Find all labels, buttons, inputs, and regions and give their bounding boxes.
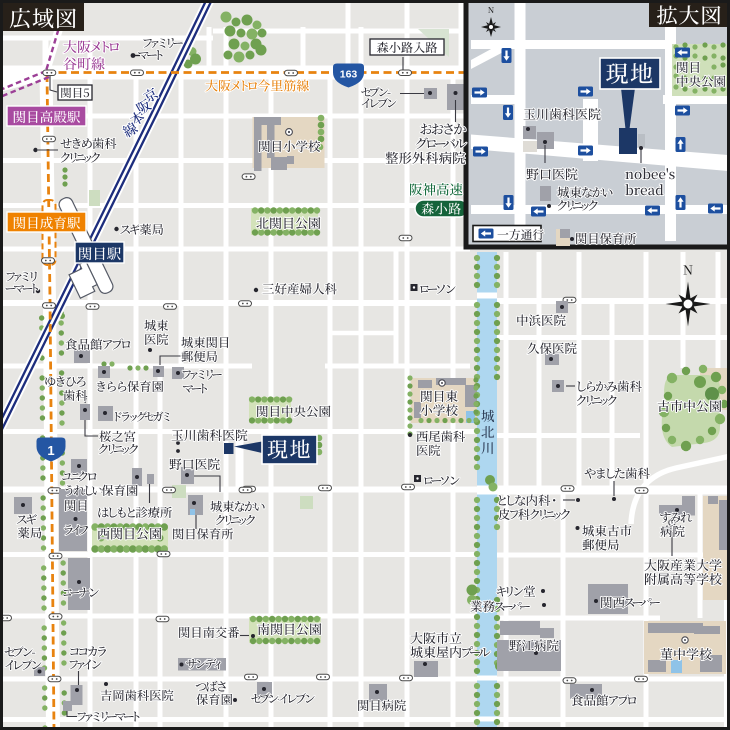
- svg-text:1: 1: [47, 443, 54, 458]
- svg-text:163: 163: [340, 69, 358, 81]
